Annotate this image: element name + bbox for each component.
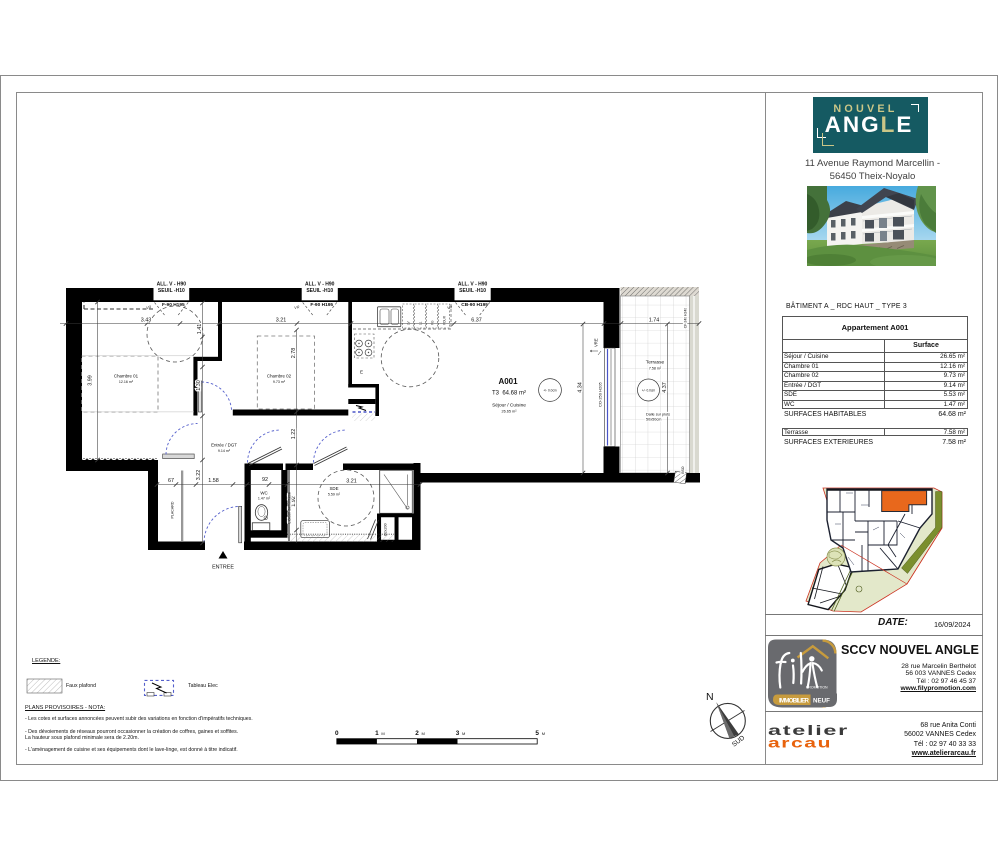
svg-text:M: M xyxy=(462,731,465,736)
svg-text:NEUF: NEUF xyxy=(813,698,830,705)
svg-text:Entrée / DGT: Entrée / DGT xyxy=(211,443,237,448)
svg-text:M: M xyxy=(381,731,384,736)
svg-text:E: E xyxy=(360,370,363,375)
svg-text:50x50cm: 50x50cm xyxy=(646,418,661,422)
svg-text:5: 5 xyxy=(535,730,539,737)
svg-text:4.37: 4.37 xyxy=(662,382,668,393)
svg-text:5.59 m²: 5.59 m² xyxy=(328,493,341,497)
svg-text:CO-250 H205: CO-250 H205 xyxy=(598,382,603,407)
svg-text:LL: LL xyxy=(419,321,423,325)
svg-text:1.30: 1.30 xyxy=(196,380,202,391)
svg-text:3: 3 xyxy=(456,730,460,737)
svg-text:ALL. V - H90: ALL. V - H90 xyxy=(458,281,488,287)
svg-text:F-90 H195: F-90 H195 xyxy=(162,302,185,308)
svg-text:0: 0 xyxy=(335,730,339,737)
svg-text:M: M xyxy=(422,731,425,736)
svg-text:Séjour / Cuisine: Séjour / Cuisine xyxy=(492,403,526,409)
svg-text:T3 64.68 m²: T3 64.68 m² xyxy=(492,391,526,397)
svg-text:WC: WC xyxy=(260,491,267,496)
svg-text:1: 1 xyxy=(375,730,379,737)
svg-text:3.43: 3.43 xyxy=(141,318,152,324)
svg-text:A001: A001 xyxy=(498,377,518,386)
svg-text:F-90 H195: F-90 H195 xyxy=(310,302,333,308)
svg-text:Chambre 01: Chambre 01 xyxy=(114,374,139,379)
svg-text:Chambre 02: Chambre 02 xyxy=(267,374,292,379)
svg-text:PLACARD: PLACARD xyxy=(171,501,175,518)
svg-text:CB-90 H195: CB-90 H195 xyxy=(461,302,488,308)
svg-text:92: 92 xyxy=(262,477,268,483)
svg-text:SEUIL -H10: SEUIL -H10 xyxy=(158,288,185,294)
svg-text:1.47 m²: 1.47 m² xyxy=(258,497,271,501)
svg-text:2.78: 2.78 xyxy=(291,348,297,359)
svg-text:arcau: arcau xyxy=(768,736,832,751)
svg-text:9.73 m²: 9.73 m² xyxy=(273,380,286,384)
svg-text:4.34: 4.34 xyxy=(578,382,584,393)
svg-text:26.65 m²: 26.65 m² xyxy=(502,410,518,414)
svg-text:1.22: 1.22 xyxy=(291,429,297,440)
svg-text:12.16 m²: 12.16 m² xyxy=(119,380,134,384)
svg-text:1.92: 1.92 xyxy=(291,496,297,507)
svg-text:SEUIL -H10: SEUIL -H10 xyxy=(306,288,333,294)
svg-text:LV: LV xyxy=(407,320,411,325)
svg-text:FG: FG xyxy=(431,320,435,325)
svg-text:ENTREE: ENTREE xyxy=(212,565,234,571)
svg-text:IMMOBILIER: IMMOBILIER xyxy=(779,698,810,705)
svg-text:BSO: BSO xyxy=(681,466,685,474)
svg-text:3.99: 3.99 xyxy=(88,375,94,386)
svg-text:M: M xyxy=(542,731,545,736)
svg-text:ALL. V - H90: ALL. V - H90 xyxy=(305,281,335,287)
svg-text:VR: VR xyxy=(447,305,453,310)
svg-text:PROMOTION: PROMOTION xyxy=(806,686,828,690)
svg-text:1.58: 1.58 xyxy=(208,478,219,484)
svg-text:CF-240 H240: CF-240 H240 xyxy=(684,308,688,328)
svg-text:3.21: 3.21 xyxy=(346,479,357,485)
svg-text:VR: VR xyxy=(294,305,300,310)
svg-text:VRE: VRE xyxy=(594,338,599,347)
svg-text:Cloison démontable: Cloison démontable xyxy=(287,492,291,524)
svg-text:Dalle sur plots: Dalle sur plots xyxy=(646,413,670,417)
svg-text:1.41: 1.41 xyxy=(197,324,203,335)
svg-text:Terrasse: Terrasse xyxy=(646,360,665,366)
svg-text:6.37: 6.37 xyxy=(471,318,482,324)
svg-text:ALL. V - H90: ALL. V - H90 xyxy=(157,281,187,287)
svg-text:+/- 0.0cm: +/- 0.0cm xyxy=(642,389,656,393)
svg-text:7.58 m²: 7.58 m² xyxy=(649,367,662,371)
svg-text:67: 67 xyxy=(168,478,174,484)
svg-text:N: N xyxy=(706,691,714,703)
svg-text:3.21: 3.21 xyxy=(276,318,287,324)
svg-text:+/- 0.0cm: +/- 0.0cm xyxy=(543,389,557,393)
svg-text:SDE: SDE xyxy=(329,486,338,491)
svg-text:2: 2 xyxy=(415,730,419,737)
svg-text:3.22: 3.22 xyxy=(196,470,202,481)
svg-text:SEUIL -H10: SEUIL -H10 xyxy=(459,288,486,294)
svg-text:9.14 m²: 9.14 m² xyxy=(218,449,231,453)
svg-text:1.74: 1.74 xyxy=(649,318,660,324)
